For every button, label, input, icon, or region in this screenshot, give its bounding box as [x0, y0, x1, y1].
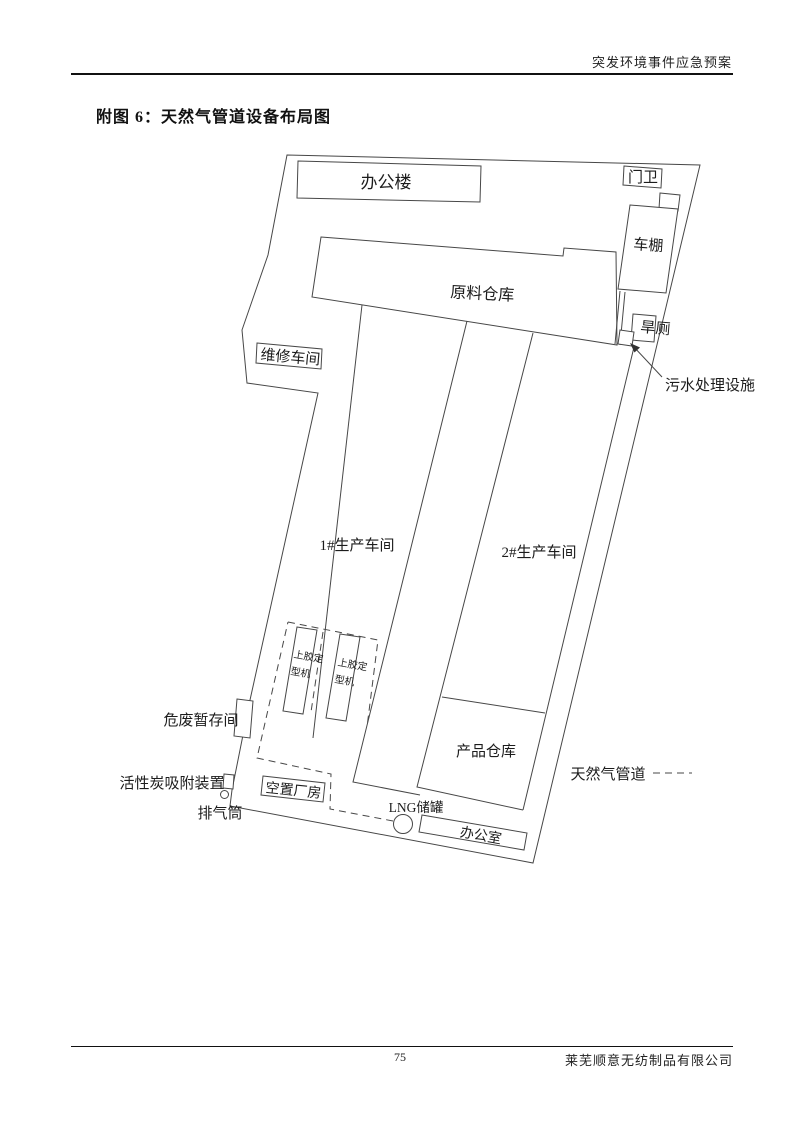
label-workshop-1: 1#生产车间 — [319, 537, 394, 554]
label-dry-toilet: 旱厕 — [640, 320, 671, 339]
label-product-warehouse: 产品仓库 — [456, 743, 516, 760]
sewage-arrow-head — [630, 343, 640, 353]
label-sewage-treatment: 污水处理设施 — [665, 377, 755, 394]
label-carport: 车棚 — [633, 236, 664, 255]
label-exhaust-stack: 排气筒 — [197, 805, 242, 822]
label-activated-carbon: 活性炭吸附装置 — [119, 775, 224, 792]
workshop2-left-wall — [417, 333, 533, 810]
sewage-treatment-box — [618, 330, 634, 346]
label-office-building: 办公楼 — [361, 173, 412, 192]
lng-tank-symbol — [394, 815, 413, 834]
sewage-arrow-line — [633, 346, 662, 377]
footer-rule — [71, 1046, 733, 1047]
label-lng-tank: LNG储罐 — [389, 800, 444, 815]
label-raw-material-warehouse: 原料仓库 — [450, 283, 515, 304]
document-page: 突发环境事件应急预案 附图 6：天然气管道设备布局图 — [0, 0, 800, 1131]
label-workshop-2: 2#生产车间 — [501, 544, 576, 561]
site-plan-diagram: 办公楼 门卫 车棚 原料仓库 维修车间 旱厕 污水处理设施 1#生产车间 2#生… — [0, 0, 800, 1131]
footer-company: 莱芜顺意无纺制品有限公司 — [565, 1050, 733, 1069]
product-warehouse-divider — [442, 697, 545, 713]
label-gate-guard: 门卫 — [628, 169, 658, 186]
label-hazardous-waste-room: 危废暂存间 — [163, 712, 238, 729]
workshop2-right-wall — [523, 347, 634, 810]
activated-carbon-box — [223, 774, 234, 789]
label-pipeline-legend: 天然气管道 — [570, 766, 645, 783]
workshop1-right-wall — [353, 321, 467, 795]
